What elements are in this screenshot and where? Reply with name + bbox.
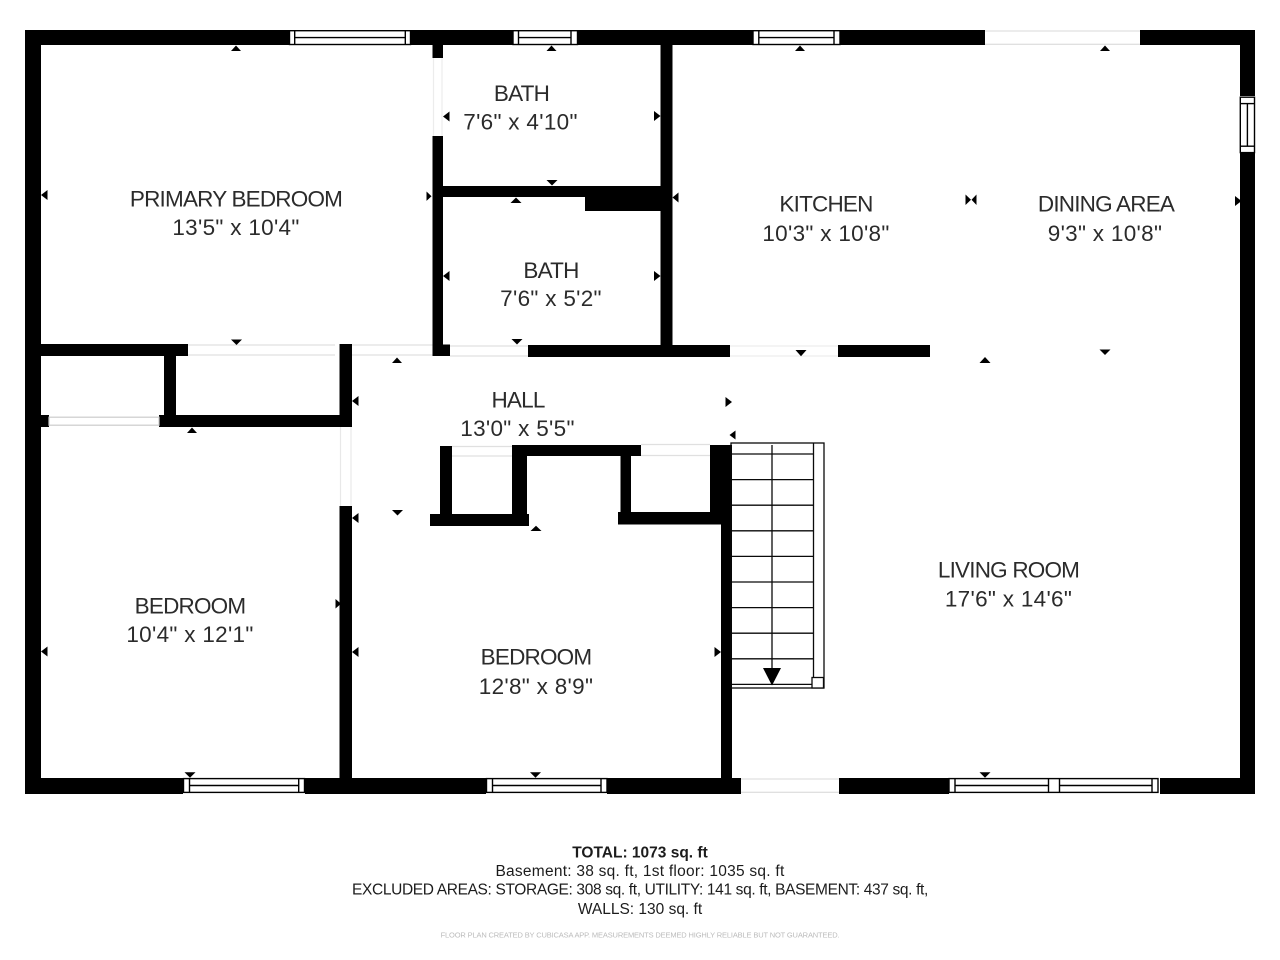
svg-text:TOTAL: 1073 sq. ft: TOTAL: 1073 sq. ft <box>572 845 708 862</box>
svg-text:9'3" x 10'8": 9'3" x 10'8" <box>1048 221 1163 246</box>
svg-text:DINING AREA: DINING AREA <box>1038 192 1175 217</box>
svg-text:BEDROOM: BEDROOM <box>135 594 246 619</box>
svg-text:13'5" x 10'4": 13'5" x 10'4" <box>172 215 299 240</box>
svg-text:KITCHEN: KITCHEN <box>779 192 872 217</box>
svg-text:PRIMARY BEDROOM: PRIMARY BEDROOM <box>130 187 342 212</box>
svg-text:WALLS: 130 sq. ft: WALLS: 130 sq. ft <box>578 901 703 918</box>
svg-text:BATH: BATH <box>523 258 578 283</box>
svg-text:LIVING ROOM: LIVING ROOM <box>938 558 1079 583</box>
svg-text:BEDROOM: BEDROOM <box>481 645 592 670</box>
svg-text:10'3" x 10'8": 10'3" x 10'8" <box>762 221 889 246</box>
svg-text:Basement: 38 sq. ft, 1st floor: Basement: 38 sq. ft, 1st floor: 1035 sq.… <box>495 863 784 880</box>
svg-text:17'6" x 14'6": 17'6" x 14'6" <box>945 587 1072 612</box>
svg-text:12'8" x 8'9": 12'8" x 8'9" <box>479 674 594 699</box>
svg-text:10'4" x 12'1": 10'4" x 12'1" <box>126 622 253 647</box>
svg-text:HALL: HALL <box>491 388 544 413</box>
svg-text:FLOOR PLAN CREATED BY CUBICASA: FLOOR PLAN CREATED BY CUBICASA APP. MEAS… <box>441 931 840 940</box>
svg-text:13'0" x 5'5": 13'0" x 5'5" <box>460 416 575 441</box>
svg-text:7'6" x 5'2": 7'6" x 5'2" <box>500 286 602 311</box>
svg-text:7'6" x 4'10": 7'6" x 4'10" <box>463 110 578 135</box>
svg-text:BATH: BATH <box>494 81 549 106</box>
svg-text:EXCLUDED AREAS: STORAGE: 308 s: EXCLUDED AREAS: STORAGE: 308 sq. ft, UTI… <box>352 882 928 899</box>
